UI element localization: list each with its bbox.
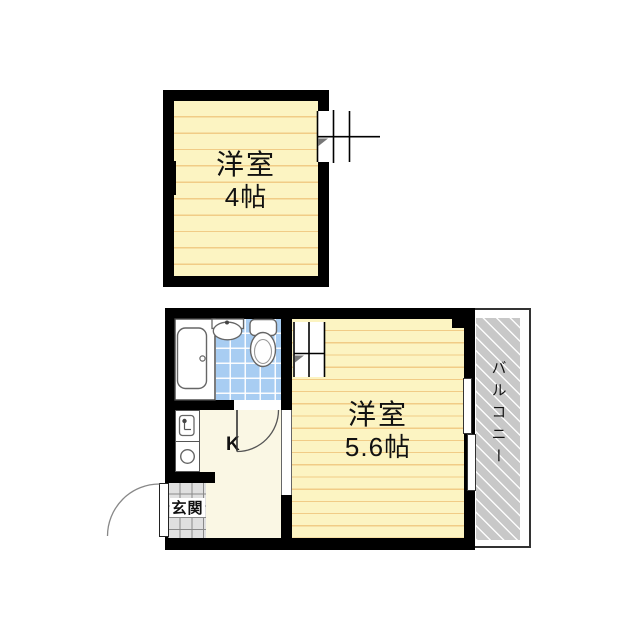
kitchen-room-opening [281, 410, 292, 495]
upper-room-label: 洋室 4帖 [174, 148, 318, 214]
kitchen-label: K [226, 434, 240, 456]
floorplan: 洋室 4帖 バルコニー 玄関 洋室 5.6帖 K [0, 0, 640, 640]
lower-unit-corner-pillar [452, 308, 472, 328]
bathroom-tile-floor [216, 319, 281, 400]
balcony-sliding-door-panel-2 [467, 434, 476, 491]
entrance-label-box: 玄関 [170, 498, 205, 517]
lower-room-window-opening [293, 322, 325, 377]
balcony-sliding-door-panel-1 [463, 378, 472, 434]
entrance-door-leaf [159, 483, 169, 537]
lower-room-size: 5.6帖 [292, 432, 464, 464]
entrance-text: 玄関 [171, 497, 203, 518]
balcony-label: バルコニー [476, 330, 520, 500]
kitchen-counter-divider [175, 441, 200, 442]
bathroom-door-opening [234, 400, 281, 410]
upper-room-window-opening [317, 111, 330, 162]
kitchen-room-wall-lower [281, 495, 292, 538]
lower-room-name: 洋室 [292, 398, 464, 432]
kitchen-room-wall-upper [281, 319, 292, 410]
bathroom-south-wall [176, 400, 234, 410]
kitchen-entrance-wall [165, 472, 215, 483]
upper-room-size: 4帖 [174, 182, 318, 214]
lower-room-label: 洋室 5.6帖 [292, 398, 464, 464]
upper-room-name: 洋室 [174, 148, 318, 182]
balcony-text: バルコニー [488, 360, 509, 470]
entrance-door-swing-icon [108, 484, 160, 536]
bathroom-floor [176, 319, 216, 400]
